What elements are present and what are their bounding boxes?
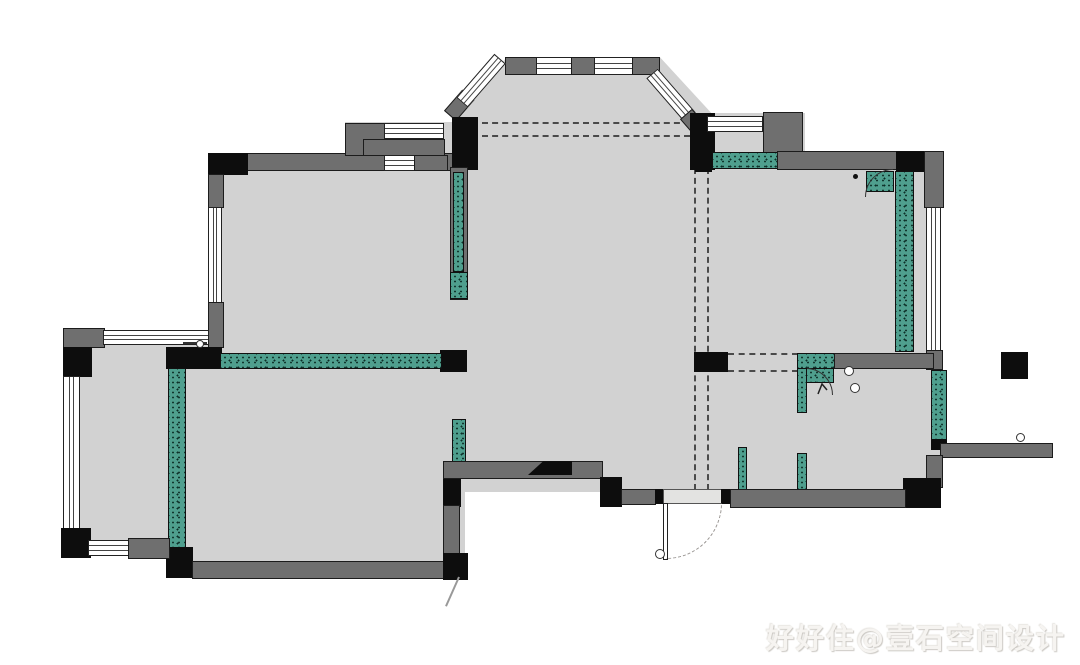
column-hall-left — [440, 350, 467, 372]
dashed-removed-wall-left-line — [694, 168, 696, 490]
wall-top-right-room-top — [777, 151, 897, 170]
window-top-right-room — [926, 207, 941, 352]
new-wall-top-right-vertical — [895, 171, 914, 352]
dashed-opening-top — [728, 353, 798, 355]
column-isolated-right — [1001, 352, 1028, 379]
wall-left-below-window — [208, 302, 224, 348]
column-bottom-left-room-right-bottom — [443, 553, 468, 580]
window-balcony-bottom — [88, 540, 132, 556]
new-wall-hall-left-cap — [450, 272, 468, 299]
column-bottom-left-corner — [166, 547, 193, 578]
symbol-drain-2 — [850, 383, 860, 393]
column-balcony-top-left — [63, 347, 92, 377]
column-top-right-inner — [695, 152, 712, 172]
column-balcony-bottom-left — [61, 528, 91, 558]
column-hall-right — [694, 352, 728, 372]
wall-step-right-block — [763, 112, 803, 153]
floor-room-bottom-left — [180, 355, 465, 570]
dashed-bay-threshold-upper — [482, 122, 690, 124]
wall-balcony-top-corner — [63, 328, 105, 348]
dashed-opening-bottom — [728, 370, 798, 372]
wall-bottom-left-room-bottom — [192, 561, 468, 579]
watermark-text: 好好住@壹石空间设计 — [766, 617, 1066, 657]
new-wall-bottom-left-vertical — [168, 368, 186, 548]
bay-top-corner-left — [505, 57, 538, 75]
new-wall-top-right-top — [712, 152, 778, 169]
bay-window-top-2 — [594, 57, 634, 75]
new-wall-stub-hall — [452, 419, 466, 462]
window-balcony-left — [63, 376, 80, 529]
window-step-left-upper — [384, 123, 444, 139]
window-top-left-room — [208, 207, 222, 303]
wall-left-of-entry-door — [621, 489, 656, 505]
floor-room-top-left — [215, 160, 465, 365]
wall-step-left-low — [414, 155, 448, 171]
dashed-removed-wall-right-line — [707, 168, 709, 490]
entry-door-sill — [663, 489, 722, 504]
floor-plan-canvas: 好好住@壹石空间设计 — [0, 0, 1080, 665]
new-wall-hall-left-inner — [453, 172, 464, 272]
leader-line-bottom-left — [445, 577, 460, 607]
column-top-right-corner — [896, 151, 926, 172]
window-step-left-lower — [384, 155, 416, 171]
symbol-circle-stub — [1016, 433, 1025, 442]
balcony-door-hinge — [196, 340, 204, 348]
column-bottom-left-room-right-top — [443, 479, 461, 507]
valve-symbol — [816, 382, 830, 396]
floor-central-hall — [455, 150, 710, 492]
column-top-left-corner — [208, 153, 248, 175]
dashed-bay-threshold-lower — [482, 135, 690, 137]
bay-window-top-1 — [536, 57, 572, 75]
bay-top-mid-pier — [571, 57, 595, 75]
dot-symbol-top-right — [853, 174, 858, 179]
wall-right-above-window — [924, 151, 944, 208]
new-wall-bath-left-lower — [797, 453, 807, 490]
window-step-right — [707, 116, 763, 132]
column-bottom-right-corner — [903, 478, 941, 508]
wall-balcony-bottom — [128, 538, 170, 559]
wall-hall-bottom — [443, 461, 603, 479]
wall-exterior-stub-right — [940, 443, 1053, 458]
new-wall-horizontal-left — [220, 353, 442, 369]
new-wall-bath-stub — [738, 447, 747, 490]
wall-step-left-mid — [363, 139, 445, 156]
new-wall-bath-top — [797, 353, 835, 369]
symbol-drain-1 — [844, 366, 854, 376]
new-wall-bath-left-upper — [797, 368, 807, 413]
new-wall-bath-right — [931, 370, 947, 440]
entry-door-hinge — [655, 549, 665, 559]
column-bay-left — [452, 117, 478, 170]
wall-bath-bottom — [730, 489, 906, 508]
wall-bottom-left-room-right — [443, 505, 460, 557]
column-entry-step — [600, 477, 622, 507]
column-junction-left — [166, 347, 222, 369]
wall-left-above-window — [208, 174, 224, 208]
